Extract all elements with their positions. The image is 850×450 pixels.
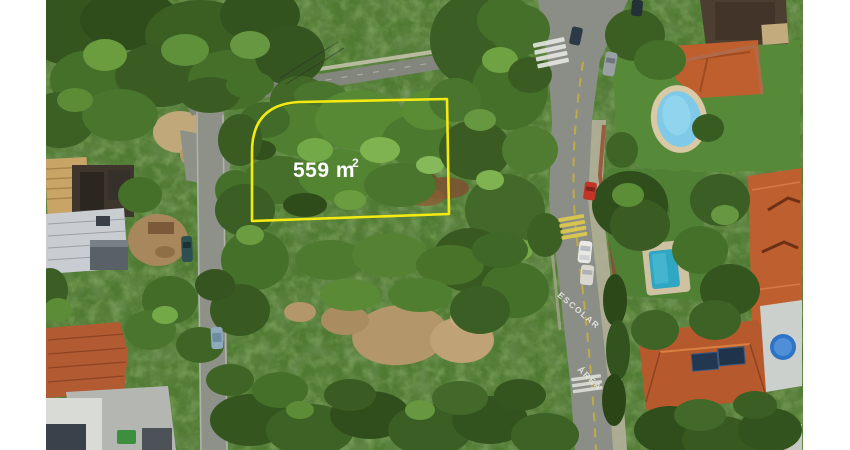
aerial-lot-photo: ESCOLAR ÁREA bbox=[0, 0, 850, 450]
area-label: 559 m bbox=[293, 159, 355, 182]
car-blue bbox=[210, 327, 223, 350]
car-white-1 bbox=[577, 240, 592, 263]
car-red bbox=[583, 181, 597, 200]
car-teal bbox=[181, 236, 193, 262]
left-margin bbox=[0, 0, 46, 450]
area-label-superscript: 2 bbox=[352, 156, 359, 170]
car-white-2 bbox=[580, 264, 595, 285]
green-dumpster bbox=[117, 430, 136, 444]
photo-canvas: ESCOLAR ÁREA bbox=[0, 0, 850, 450]
gray-shed bbox=[142, 428, 172, 450]
construction-site bbox=[128, 214, 188, 266]
terracotta-house-left bbox=[46, 322, 128, 398]
car-dark-2 bbox=[631, 0, 643, 16]
right-margin bbox=[803, 0, 850, 450]
